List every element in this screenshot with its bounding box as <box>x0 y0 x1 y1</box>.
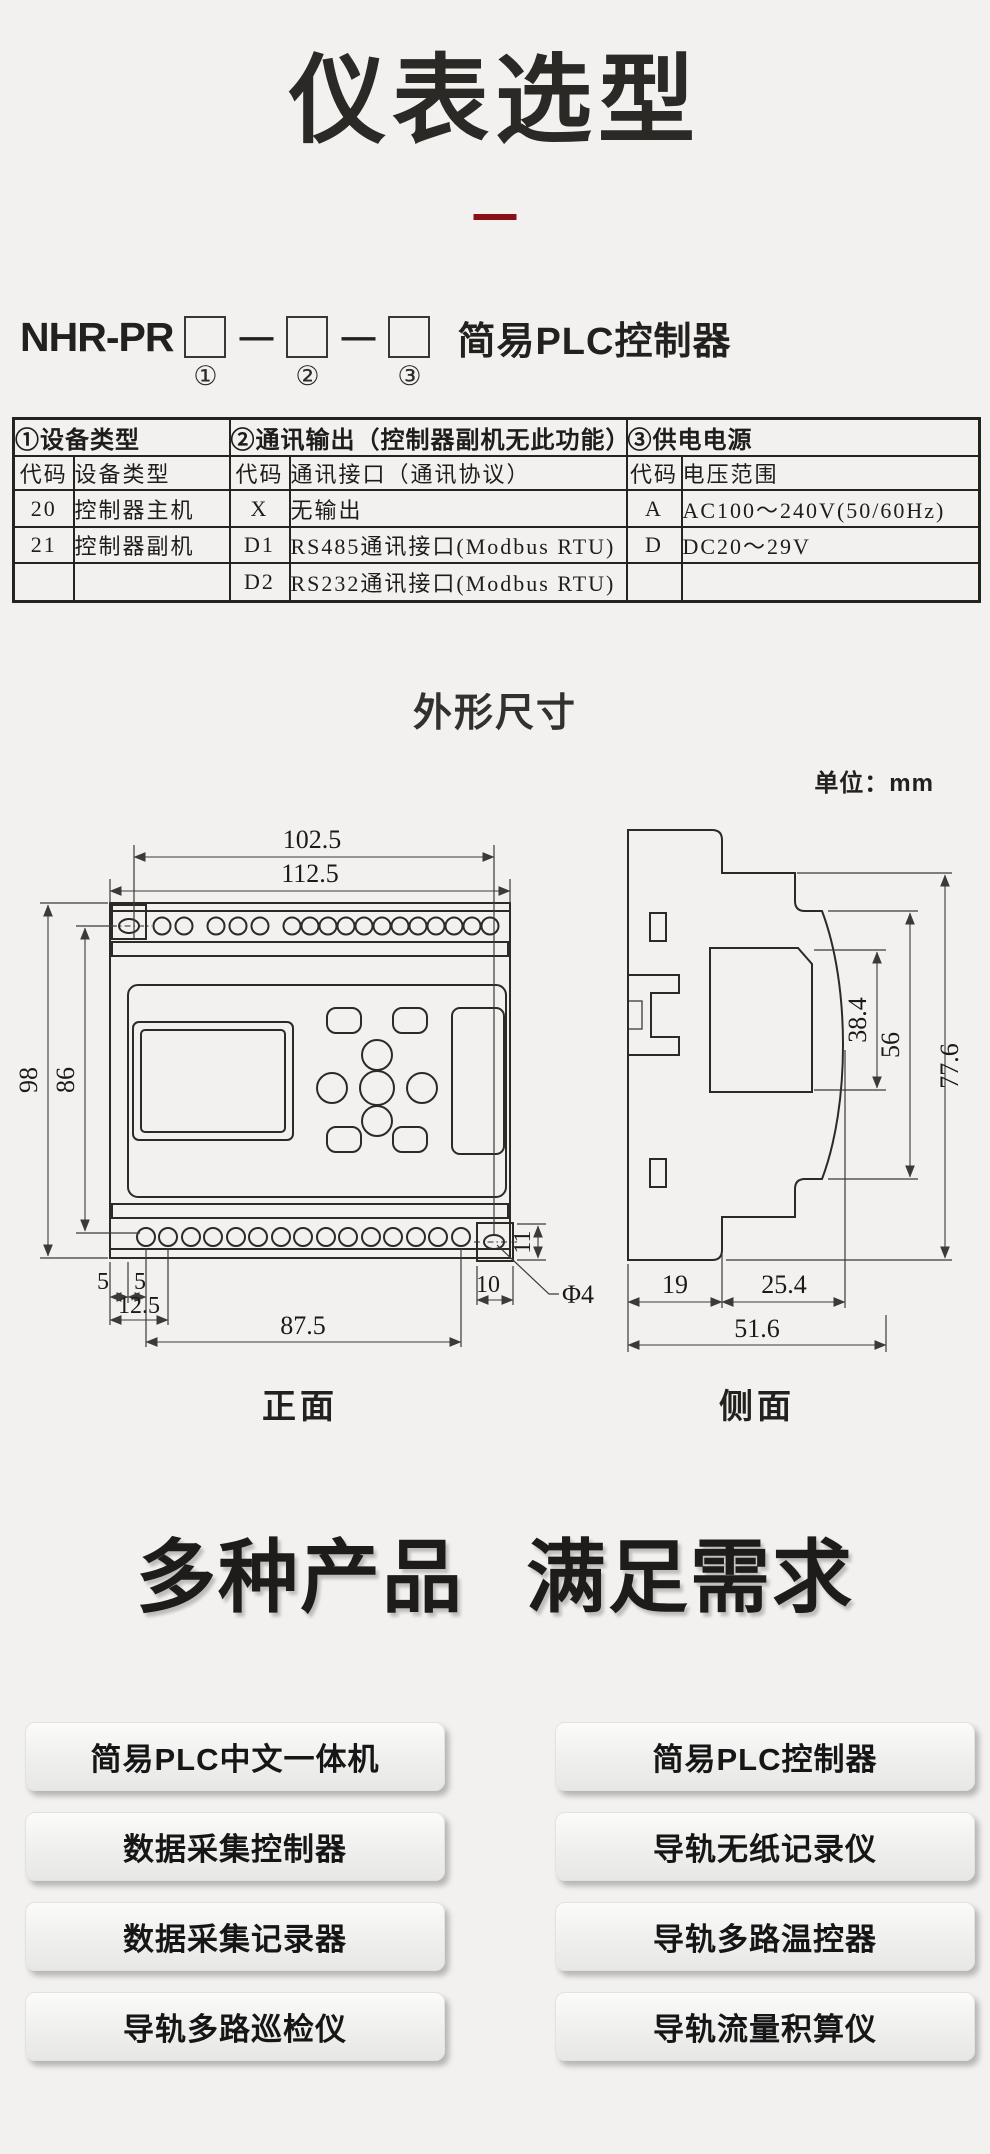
side-view-label: 侧面 <box>719 1388 795 1426</box>
dim-front-height-inner: 86 <box>51 1067 80 1093</box>
product-button-daq-recorder[interactable]: 数据采集记录器 <box>25 1902 445 1971</box>
cell-value: 控制器副机 <box>74 527 230 563</box>
product-button-plc-allinone[interactable]: 简易PLC中文一体机 <box>25 1722 445 1791</box>
col-header-device-type: 设备类型 <box>74 456 230 490</box>
cell-value: DC20～29V <box>682 527 980 563</box>
model-dash-2: — <box>341 318 375 357</box>
product-button-rail-scanner[interactable]: 导轨多路巡检仪 <box>25 1992 445 2061</box>
side-view <box>628 830 843 1260</box>
model-mark-1: ① <box>193 361 217 392</box>
dim-front-height-full: 98 <box>14 1067 43 1093</box>
section-title-device-type: ①设备类型 <box>14 419 230 457</box>
side-clip-bottom <box>650 1159 666 1187</box>
dim-side-total-depth: 51.6 <box>734 1314 780 1343</box>
dim-side-front-depth: 25.4 <box>761 1270 807 1299</box>
cell-code: X <box>230 490 290 527</box>
cell-value: 控制器主机 <box>74 490 230 527</box>
front-view <box>110 903 517 1261</box>
cell-value: 无输出 <box>290 490 627 527</box>
dim-side-display-height: 38.4 <box>843 997 872 1043</box>
model-code-row: NHR-PR ① — ② — ③ 简易PLC控制器 <box>20 314 731 360</box>
products-heading: 多种产品 满足需求 <box>0 1536 990 1620</box>
side-view-dimensions: 38.4 56 77.6 19 25.4 51.6 <box>628 873 964 1352</box>
model-mark-3: ③ <box>397 361 421 392</box>
table-row: 21 控制器副机 D1 RS485通讯接口(Modbus RTU) D DC20… <box>14 527 980 563</box>
dim-front-offset-b: 5 <box>134 1269 146 1295</box>
table-row: D2 RS232通讯接口(Modbus RTU) <box>14 563 980 601</box>
cell-code: D2 <box>230 563 290 601</box>
col-header-code: 代码 <box>230 456 290 490</box>
product-button-plc-controller[interactable]: 简易PLC控制器 <box>555 1722 975 1791</box>
col-header-code: 代码 <box>14 456 74 490</box>
cell-value: RS232通讯接口(Modbus RTU) <box>290 563 627 601</box>
side-din-notch <box>628 975 679 1055</box>
cell-code: 21 <box>14 527 74 563</box>
cell-value <box>682 563 980 601</box>
front-side-cover <box>452 1008 504 1154</box>
model-prefix: NHR-PR <box>20 314 173 361</box>
dim-side-back-depth: 19 <box>662 1270 688 1299</box>
model-mark-2: ② <box>295 361 319 392</box>
front-view-label: 正面 <box>262 1388 338 1426</box>
product-button-grid: 简易PLC中文一体机 简易PLC控制器 数据采集控制器 导轨无纸记录仪 数据采集… <box>25 1722 975 2061</box>
dim-front-span-bottom: 87.5 <box>280 1311 326 1340</box>
section-title-comm-output: ②通讯输出（控制器副机无此功能） <box>230 419 627 457</box>
cell-code: A <box>627 490 682 527</box>
cell-code: 20 <box>14 490 74 527</box>
col-header-comm-interface: 通讯接口（通讯协议） <box>290 456 627 490</box>
products-heading-part-2: 满足需求 <box>526 1536 854 1620</box>
front-vent-strip-bottom <box>112 1204 508 1218</box>
dim-side-front-height: 56 <box>876 1032 905 1058</box>
product-button-rail-temp-controller[interactable]: 导轨多路温控器 <box>555 1902 975 1971</box>
model-box-2: ② <box>286 316 328 358</box>
dim-front-width-top: 102.5 <box>283 825 342 854</box>
side-display-block <box>710 948 812 1092</box>
col-header-code: 代码 <box>627 456 682 490</box>
products-heading-part-1: 多种产品 <box>136 1536 464 1620</box>
cell-code: D <box>627 527 682 563</box>
dim-front-offset-c: 12.5 <box>118 1293 160 1319</box>
front-key-cluster <box>317 1008 437 1152</box>
product-button-rail-paperless-recorder[interactable]: 导轨无纸记录仪 <box>555 1812 975 1881</box>
title-accent-dash <box>474 214 517 220</box>
front-vent-strip-top <box>112 942 508 956</box>
col-header-voltage-range: 电压范围 <box>682 456 980 490</box>
dim-front-ear-height: 11 <box>510 1230 536 1253</box>
unit-label: 单位：mm <box>814 763 934 798</box>
model-box-3: ③ <box>388 316 430 358</box>
product-button-rail-flow-totalizer[interactable]: 导轨流量积算仪 <box>555 1992 975 2061</box>
dim-front-hole-dia: Φ4 <box>562 1280 594 1309</box>
cell-value <box>74 563 230 601</box>
product-button-daq-controller[interactable]: 数据采集控制器 <box>25 1812 445 1881</box>
model-suffix: 简易PLC控制器 <box>457 310 731 365</box>
cell-value: RS485通讯接口(Modbus RTU) <box>290 527 627 563</box>
side-clip-top <box>650 913 666 941</box>
dim-front-width-full: 112.5 <box>281 859 339 888</box>
side-din-slot <box>628 1001 642 1029</box>
side-silhouette <box>628 830 843 1260</box>
cell-code <box>14 563 74 601</box>
model-dash-1: — <box>239 318 273 357</box>
dimension-drawing: 102.5 112.5 98 86 5 5 12.5 87.5 <box>0 800 990 1432</box>
table-subheader-row: 代码 设备类型 代码 通讯接口（通讯协议） 代码 电压范围 <box>14 456 980 490</box>
dimensions-heading: 外形尺寸 <box>0 682 990 738</box>
cell-code: D1 <box>230 527 290 563</box>
section-title-power-supply: ③供电电源 <box>627 419 980 457</box>
product-selection-page: 仪表选型 NHR-PR ① — ② — ③ 简易PLC控制器 ①设备类型 ②通讯… <box>0 0 990 2154</box>
table-section-header-row: ①设备类型 ②通讯输出（控制器副机无此功能） ③供电电源 <box>14 419 980 457</box>
cell-code <box>627 563 682 601</box>
table-row: 20 控制器主机 X 无输出 A AC100～240V(50/60Hz) <box>14 490 980 527</box>
front-lcd <box>133 1022 293 1140</box>
front-terminal-circles-bottom <box>137 1228 470 1246</box>
selection-table: ①设备类型 ②通讯输出（控制器副机无此功能） ③供电电源 代码 设备类型 代码 … <box>12 417 981 603</box>
cell-value: AC100～240V(50/60Hz) <box>682 490 980 527</box>
dim-side-total-height: 77.6 <box>935 1043 964 1089</box>
model-box-1: ① <box>184 316 226 358</box>
front-terminal-circles-top <box>154 918 499 935</box>
dim-front-ear-width: 10 <box>476 1272 500 1298</box>
page-title: 仪表选型 <box>0 48 990 155</box>
dim-front-offset-a: 5 <box>97 1269 109 1295</box>
